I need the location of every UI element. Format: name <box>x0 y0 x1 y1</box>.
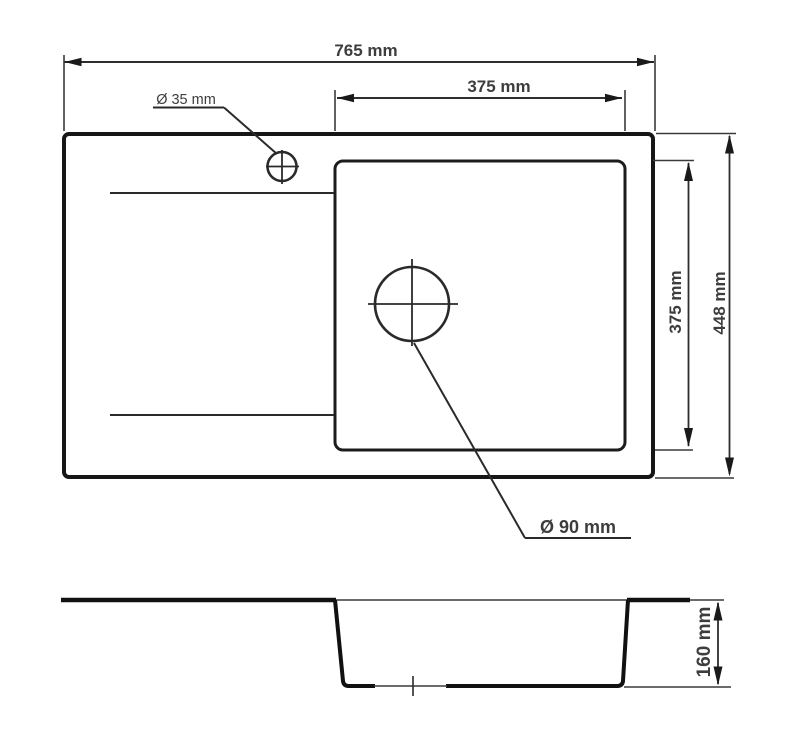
svg-text:448 mm: 448 mm <box>710 271 729 334</box>
svg-text:765 mm: 765 mm <box>334 41 397 60</box>
svg-text:Ø 90 mm: Ø 90 mm <box>540 517 616 537</box>
svg-text:375 mm: 375 mm <box>467 77 530 96</box>
svg-text:Ø 35 mm: Ø 35 mm <box>156 92 216 108</box>
svg-text:160 mm: 160 mm <box>694 607 715 678</box>
svg-text:375 mm: 375 mm <box>666 270 685 333</box>
